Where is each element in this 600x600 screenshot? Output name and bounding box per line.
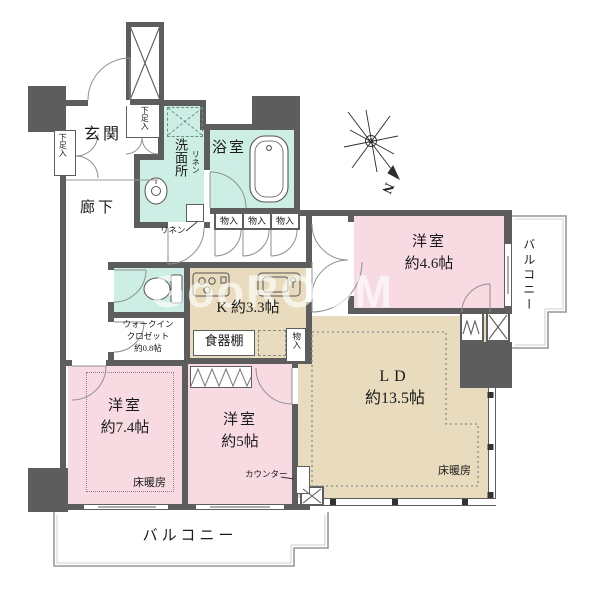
storage-2-label: 物入 xyxy=(244,214,272,228)
ld-name: LD xyxy=(298,368,492,386)
entry-door-opening xyxy=(88,100,130,106)
bedroom46-size: 約4.6帖 xyxy=(354,256,504,273)
wall-bath-right xyxy=(294,124,300,216)
toilet-door-opening xyxy=(108,270,114,302)
pipe-shaft xyxy=(126,22,164,104)
pipe-space-box xyxy=(486,312,510,342)
floor-heating-ld-label: 床暖房 xyxy=(438,465,471,478)
shoe-cabinet-left-label: 下足入 xyxy=(58,133,67,157)
ld-size: 約13.5帖 xyxy=(298,390,492,408)
corridor-label: 廊下 xyxy=(80,200,116,217)
wic-label-3: 約0.8帖 xyxy=(112,344,184,354)
bedroom5-name: 洋室 xyxy=(188,412,292,429)
washroom-floor-ext xyxy=(140,160,164,222)
storage-row: 物入 物入 物入 xyxy=(214,212,300,230)
ld-window-bottom xyxy=(304,498,496,506)
bedroom5-closet xyxy=(190,366,252,388)
floor-plan: 物入 物入 物入 xyxy=(0,0,600,600)
wall-wing-top xyxy=(294,210,510,216)
bath-label: 浴室 xyxy=(212,140,246,157)
balcony-bottom-label: バルコニー xyxy=(110,528,270,545)
wic-label-1: ウォークイン xyxy=(112,320,184,330)
bedroom74-size: 約7.4帖 xyxy=(68,420,182,437)
bedroom5-size: 約5帖 xyxy=(188,434,292,451)
linen-note-label: リネン xyxy=(160,226,186,236)
refrigerator-space xyxy=(258,330,286,356)
counter-nook xyxy=(296,466,310,494)
wall-top-b xyxy=(158,100,206,106)
bedroom5-window xyxy=(196,504,284,510)
wall-wash-left xyxy=(134,154,140,228)
bedroom74-door-opening xyxy=(72,360,106,366)
compass-icon xyxy=(344,110,399,179)
wall-ne-corner xyxy=(504,210,512,244)
bedroom46-name: 洋室 xyxy=(354,234,504,251)
shoe-cabinet-top-label: 下足入 xyxy=(140,106,149,130)
bath-door-opening xyxy=(204,170,210,208)
bedroom74-window xyxy=(84,504,168,510)
bedroom74-name: 洋室 xyxy=(68,398,182,415)
bedroom46-balcony-window xyxy=(504,244,512,306)
kitchen-label: K 約3.3帖 xyxy=(190,300,306,317)
linen-closet xyxy=(186,204,204,222)
washroom-hatch-box xyxy=(167,107,203,137)
kitchen-storage-label: 物入 xyxy=(291,332,301,349)
linen-cabinet-label: リネン xyxy=(191,150,200,174)
balcony-right-label: バルコニー xyxy=(521,238,535,313)
meter-box xyxy=(460,312,484,342)
washroom-label: 洗面所 xyxy=(172,138,187,177)
wall-block-bath xyxy=(252,96,300,130)
cupboard-label: 食器棚 xyxy=(193,334,255,349)
genkan-label: 玄関 xyxy=(84,126,122,144)
wic-label-2: クロゼット xyxy=(112,332,184,342)
counter-label: カウンター xyxy=(245,470,288,480)
storage-3-label: 物入 xyxy=(272,214,298,228)
storage-1-label: 物入 xyxy=(216,214,244,228)
compass-north-label: N xyxy=(378,180,396,196)
floor-heating-74-label: 床暖房 xyxy=(133,477,166,490)
